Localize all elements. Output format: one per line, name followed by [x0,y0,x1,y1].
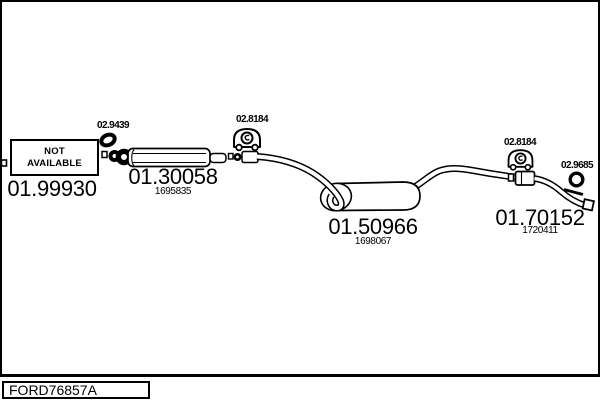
grommet-icon [570,173,583,186]
intermediate-pipe-drawing [257,157,341,209]
fitting-number-hanger-rear[interactable]: 02.8184 [498,137,542,148]
fitting-number-grommet[interactable]: 02.9685 [555,160,599,171]
front-pipe-clamp-drawing [229,152,259,163]
gasket-icon [100,133,117,148]
tail-pipe-clamp-drawing [509,172,535,186]
front-pipe-connector-square [2,160,7,166]
exhaust-parts-diagram: NOT AVAILABLE 01.99930 01.30058 1695835 … [0,0,600,400]
not-available-box: NOT AVAILABLE [10,139,99,176]
part-number-front-pipe[interactable]: 01.99930 [4,176,100,202]
diagram-code-box: FORD76857A [2,381,150,399]
part-ref-center-silencer: 1695835 [136,186,210,197]
part-ref-tail-pipe: 1720411 [502,225,578,236]
muffler-exit-pipe-drawing [406,169,517,192]
fitting-number-gasket[interactable]: 02.9439 [93,120,133,131]
hanger-mount-icon-rear [509,150,533,170]
fitting-number-hanger-front[interactable]: 02.8184 [230,114,274,125]
not-available-line1: NOT [44,146,65,158]
part-ref-rear-muffler: 1698067 [336,236,410,247]
hanger-mount-icon-front [234,129,260,150]
diagram-code-label: FORD76857A [9,382,97,398]
not-available-line2: AVAILABLE [27,158,82,170]
